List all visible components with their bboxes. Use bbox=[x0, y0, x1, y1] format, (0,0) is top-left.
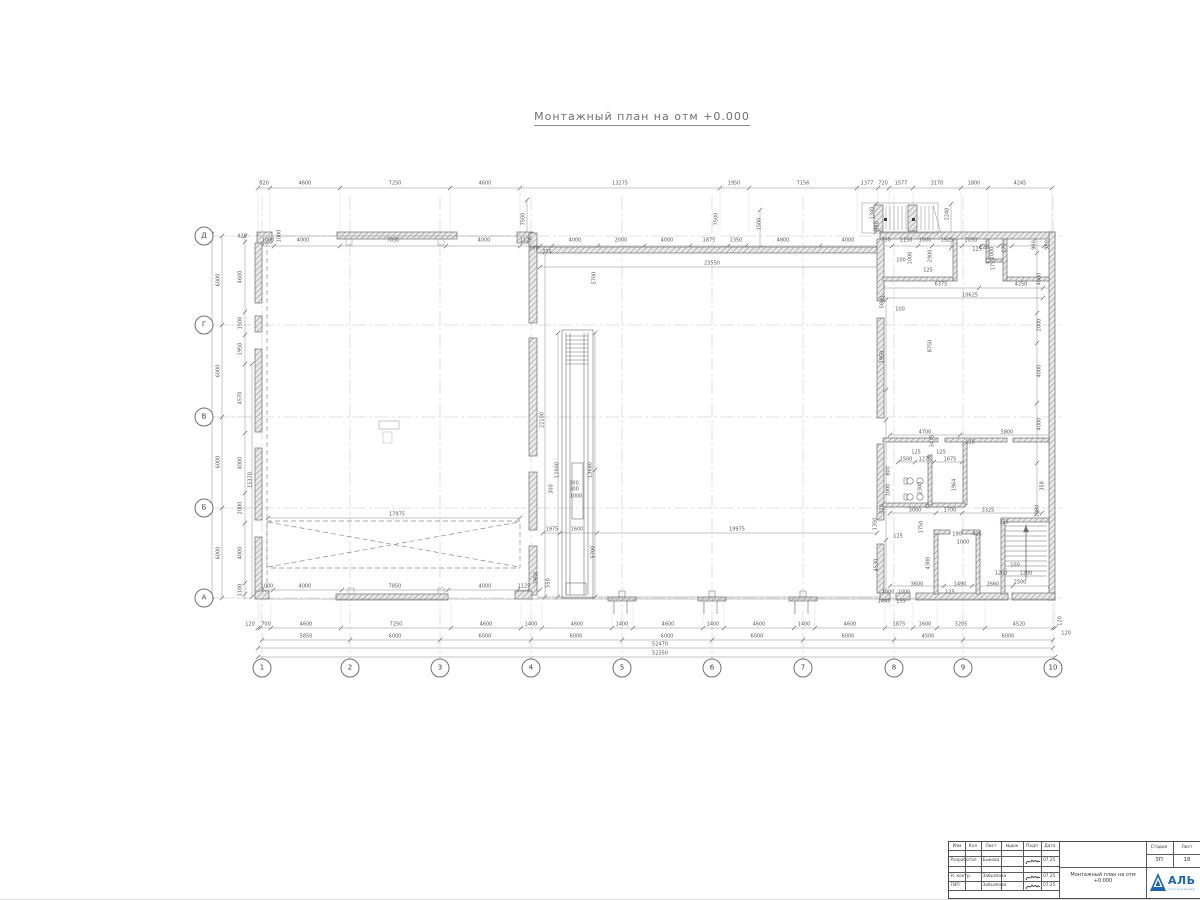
tb-name: Забьялова bbox=[983, 875, 1007, 879]
tb-header-4: Подп bbox=[1026, 845, 1038, 849]
company-logo-icon bbox=[1149, 872, 1167, 892]
walls bbox=[255, 205, 1055, 601]
tb-header-5: Дата bbox=[1044, 845, 1055, 849]
column-footings bbox=[614, 591, 808, 614]
tb-header-1: Кол bbox=[969, 845, 977, 849]
stage-label: Стадия bbox=[1151, 846, 1168, 850]
tb-role: ГИП bbox=[951, 884, 960, 888]
sheet-value: 18 bbox=[1184, 858, 1191, 864]
tb-date: 07.25 bbox=[1043, 859, 1055, 863]
tb-date: 07.25 bbox=[1043, 875, 1055, 879]
dashed-zone bbox=[267, 242, 520, 588]
drawing-canvas bbox=[0, 0, 1200, 900]
signature-icon bbox=[1025, 857, 1041, 866]
tb-date: 07.25 bbox=[1043, 884, 1055, 888]
title-block: ИзмКолЛист№докПодпДатаРазработалБыкова07… bbox=[948, 841, 1200, 899]
company-logo-text: АЛЬ bbox=[1168, 874, 1196, 887]
tb-name: Забьялова bbox=[983, 884, 1007, 888]
sheet-label: Лист bbox=[1182, 846, 1193, 850]
tb-header-2: Лист bbox=[986, 845, 997, 849]
dimension-lines bbox=[210, 186, 1057, 659]
drawing-page: Монтажный план на отм +0.000 bbox=[0, 0, 1200, 900]
conveyor-shaft bbox=[562, 330, 593, 598]
staircase bbox=[1005, 524, 1047, 580]
tb-role: Н. контр bbox=[951, 875, 970, 879]
signature-icon bbox=[1025, 882, 1041, 891]
tb-header-3: №док bbox=[1006, 845, 1019, 849]
company-logo-subtext: строительная bbox=[1168, 887, 1195, 891]
doc-title: Монтажный план на отм +0.000 bbox=[1061, 872, 1145, 884]
tb-name: Быкова bbox=[983, 859, 1000, 863]
tb-header-0: Изм bbox=[953, 845, 962, 849]
stage-value: ЗП bbox=[1155, 858, 1163, 864]
signature-icon bbox=[1025, 873, 1041, 882]
tb-role: Разработал bbox=[951, 859, 977, 863]
